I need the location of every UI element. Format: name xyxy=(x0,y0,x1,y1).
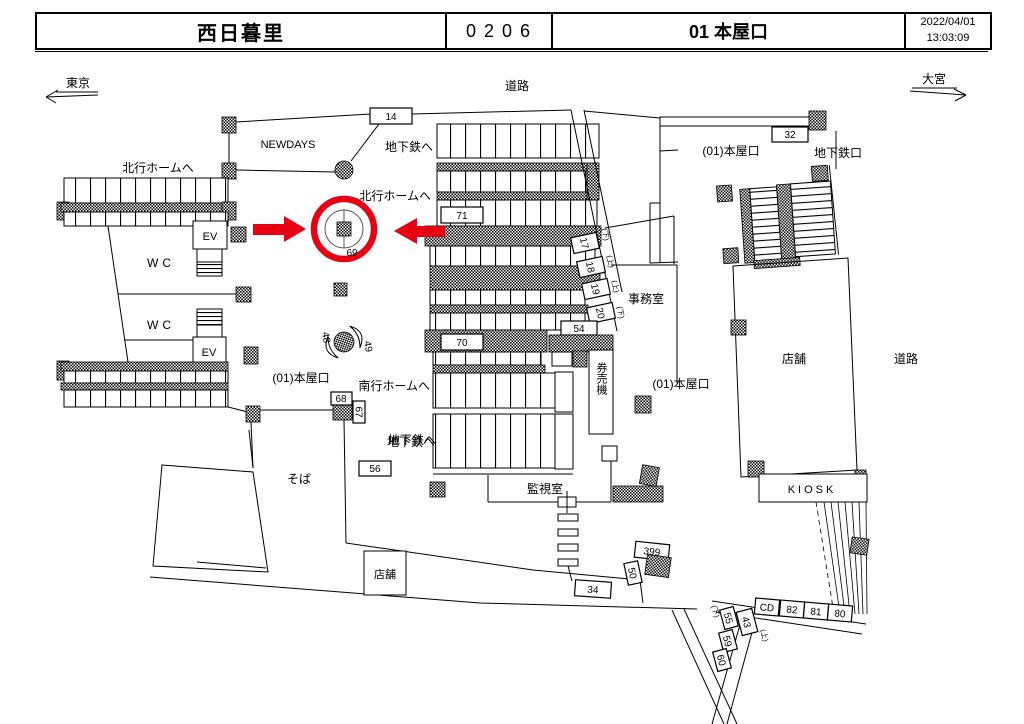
marker-box-56[interactable]: 56 xyxy=(359,461,391,476)
pillar xyxy=(430,482,445,497)
marker-box-67[interactable]: 67 xyxy=(353,401,366,423)
to-subway-label: 地下鉄へ xyxy=(388,432,436,447)
pillar xyxy=(573,351,587,367)
wc-label: WC xyxy=(147,256,175,270)
pillar xyxy=(236,287,251,302)
pillar xyxy=(222,163,236,179)
round-pillar xyxy=(335,161,353,179)
marker-box-20[interactable]: 20 xyxy=(587,302,616,323)
wc-label: WC xyxy=(147,318,175,332)
pillar xyxy=(246,406,260,422)
marker-box-68-label: 68 xyxy=(335,394,347,405)
dir-tag: (下) xyxy=(615,305,627,320)
ev-label: EV xyxy=(202,347,217,359)
station-floorplan: 東京 道路 大宮 道路 NEWDAYS xyxy=(0,0,1024,724)
ev-label: EV xyxy=(203,231,218,243)
marker-box-80-label: 80 xyxy=(834,609,846,621)
camera-48-49[interactable]: 48 49 xyxy=(319,323,374,361)
pillar xyxy=(337,222,351,236)
compass-west: 東京 xyxy=(46,76,98,103)
marker-box-34-label: 34 xyxy=(587,585,599,597)
subway-stairs xyxy=(716,165,840,271)
marker-box-71[interactable]: 71 xyxy=(441,207,483,223)
to-north-platform-label: 北行ホームへ xyxy=(359,189,431,203)
shop-right-outline xyxy=(733,258,857,477)
pillar xyxy=(639,465,659,487)
marker-box-67-label: 67 xyxy=(353,406,364,418)
compass-west-label: 東京 xyxy=(66,76,90,90)
marker-box-81[interactable]: 81 xyxy=(803,602,828,620)
main-gate-label: (01)本屋口 xyxy=(702,144,759,158)
stairs-north-left: 北行ホームへ xyxy=(57,161,236,226)
marker-box-50[interactable]: 50 xyxy=(624,561,642,585)
dir-tag: (上) xyxy=(605,254,617,269)
monitor-room-label: 監視室 xyxy=(527,481,563,496)
highlighted-camera-69[interactable]: 69 xyxy=(253,199,445,259)
marker-box-70[interactable]: 70 xyxy=(441,334,483,350)
marker-box-54[interactable]: 54 xyxy=(561,321,597,335)
kiosk-label: KIOSK xyxy=(788,484,837,496)
newdays-label: NEWDAYS xyxy=(261,139,316,151)
camera-49-label: 49 xyxy=(361,340,374,353)
pillar xyxy=(809,111,826,130)
compass-east: 大宮 xyxy=(910,71,966,101)
subway-gate-label: 地下鉄口 xyxy=(814,145,862,160)
louver xyxy=(197,309,222,325)
dir-tag: (上) xyxy=(610,279,622,294)
marker-box-82-label: 82 xyxy=(786,605,798,617)
marker-box-14[interactable]: 14 xyxy=(370,108,412,124)
marker-box-70-label: 70 xyxy=(456,338,468,349)
road-label-right: 道路 xyxy=(894,351,918,366)
ticket-machines-label: 券売機 xyxy=(595,361,608,396)
office-label: 事務室 xyxy=(628,291,664,306)
to-north-platform-label: 北行ホームへ xyxy=(122,161,194,175)
shop-label: 店舗 xyxy=(374,567,396,581)
marker-box-cd[interactable]: CD xyxy=(754,598,779,616)
dir-tag: (上) xyxy=(758,628,770,643)
to-south-platform-label: 南行ホームへ xyxy=(358,378,430,393)
main-gate-label: (01)本屋口 xyxy=(272,371,329,385)
marker-box-34[interactable]: 34 xyxy=(574,580,611,598)
top-right-area: 32 (01)本屋口 地下鉄口 店舗 xyxy=(650,111,862,477)
to-subway-label: 地下鉄へ xyxy=(385,139,433,154)
pillar xyxy=(334,283,347,296)
marker-box-cd-label: CD xyxy=(759,602,774,614)
soba-label: そば xyxy=(287,472,311,486)
wall xyxy=(660,117,811,126)
marker-box-60[interactable]: 60 xyxy=(713,649,732,672)
wc-ev-block: EV WC WC EV xyxy=(108,221,236,365)
marker-box-71-label: 71 xyxy=(456,211,468,222)
marker-box-14-label: 14 xyxy=(385,112,397,123)
road-label-top: 道路 xyxy=(505,78,529,93)
marker-box-68[interactable]: 68 xyxy=(331,392,352,405)
stairs-south-left xyxy=(57,361,248,412)
compass-east-label: 大宮 xyxy=(922,71,946,86)
pillar xyxy=(231,227,246,242)
room-outline xyxy=(153,465,268,572)
marker-box-80[interactable]: 80 xyxy=(827,604,852,622)
dir-tag: (下) xyxy=(600,227,612,242)
pillar xyxy=(731,320,746,335)
ticket-area: 券売機 (01)本屋口 xyxy=(552,350,710,469)
marker-box-82[interactable]: 82 xyxy=(779,600,804,618)
pillar xyxy=(635,396,651,413)
camera-69-label: 69 xyxy=(346,248,358,259)
bottom-right-area: KIOSK CD 82 81 xyxy=(709,461,869,724)
camera-48-label: 48 xyxy=(319,331,332,344)
pillar xyxy=(222,117,236,133)
shop-label: 店舗 xyxy=(782,352,806,366)
marker-box-32-label: 32 xyxy=(784,130,796,141)
marker-box-55[interactable]: 55 xyxy=(720,607,739,630)
louver xyxy=(197,262,222,276)
marker-box-81-label: 81 xyxy=(810,607,822,619)
marker-box-56-label: 56 xyxy=(369,464,381,475)
marker-box-59[interactable]: 59 xyxy=(719,630,738,653)
marker-box-32[interactable]: 32 xyxy=(772,127,808,142)
main-gate-label: (01)本屋口 xyxy=(652,377,709,391)
pillar xyxy=(645,554,672,577)
pillar xyxy=(244,347,258,364)
pillar xyxy=(850,537,869,555)
red-arrow-left-icon xyxy=(253,216,306,242)
marker-box-54-label: 54 xyxy=(573,324,585,335)
camera-map-page: 西日暮里 0206 01 本屋口 2022/04/01 13:03:09 xyxy=(0,0,1024,724)
